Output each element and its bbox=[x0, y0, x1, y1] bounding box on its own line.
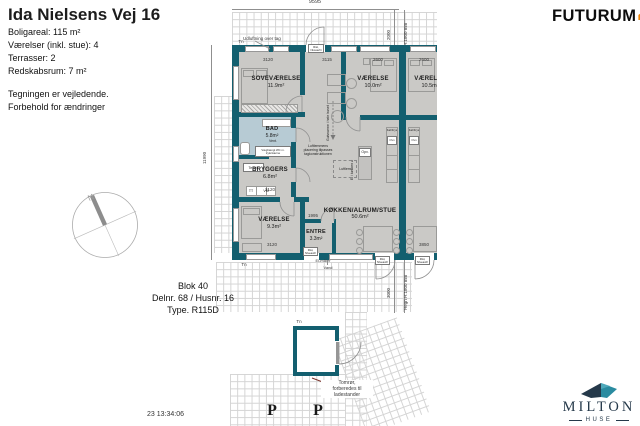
block-line2: Delnr. 68 / Husnr. 16 bbox=[133, 292, 253, 304]
spec-terrasser: Terrasser: 2 bbox=[8, 52, 56, 65]
room-label-entre: ENTRE 3.3m² bbox=[306, 229, 326, 242]
shed bbox=[293, 326, 339, 376]
dim-sove-width: 3120 bbox=[255, 57, 281, 62]
milton-rule-left bbox=[569, 420, 582, 421]
block-line1: Blok 40 bbox=[133, 280, 253, 292]
timestamp: 23 13:34:06 bbox=[147, 411, 184, 418]
spec-redskabsrum: Redskabsrum: 7 m² bbox=[8, 65, 87, 78]
dim-neighbor-stue-width: 3850 bbox=[412, 242, 436, 247]
neighbor-unit-clip: VÆRELSE 10.5m² bbox=[406, 52, 437, 253]
el-meter-label: El-måler bbox=[310, 258, 336, 263]
dim-entre-width: 1995 bbox=[303, 213, 323, 218]
milton-wordmark: MILTON bbox=[558, 399, 640, 416]
parking-spot-letter: P bbox=[312, 402, 324, 420]
gulvvarme-note: Gulvvarme i hele huset bbox=[326, 99, 330, 141]
block-line3: Type. R115D bbox=[133, 304, 253, 316]
dim-v2-width: 2600 bbox=[411, 57, 437, 62]
shed-door-leaf bbox=[336, 342, 339, 364]
disclaimer-line2: Forbehold for ændringer bbox=[8, 101, 105, 114]
room-label-bryggers: BRYGGERS 6.8m² bbox=[252, 167, 288, 180]
compass-rose bbox=[68, 188, 142, 262]
room-label-sovevaerelse: SOVEVÆRELSE 11.9m² bbox=[252, 76, 301, 89]
dim-stue-width: 3115 bbox=[314, 57, 340, 62]
milton-subtitle: HUSE bbox=[586, 417, 613, 423]
milton-rule-right bbox=[616, 420, 629, 421]
room-label-stue: KØKKEN/ALRUM/STUE 50.6m² bbox=[324, 207, 397, 220]
room-label-vaerelse-1: VÆRELSE 10.0m² bbox=[357, 76, 388, 89]
loft-hatch-box: Luftlem bbox=[333, 160, 357, 178]
charging-note: Tomrør, forberedes til ladestander bbox=[321, 380, 373, 398]
room-label-bad: BAD 5.8m² bbox=[266, 126, 279, 139]
luftlem-note: Luftlemmens placering tilpasses tagkonst… bbox=[300, 144, 336, 156]
room-label-vaerelse-2: VÆRELSE 10.5m² bbox=[414, 76, 437, 89]
tn-marker: Tn bbox=[294, 319, 304, 324]
milton-roof-icon bbox=[579, 381, 619, 399]
parking-spot-letter: P bbox=[266, 402, 278, 420]
dim-bryggers-width: 3120 bbox=[258, 187, 282, 192]
disclaimer-line1: Tegningen er vejledende. bbox=[8, 88, 109, 101]
dim-v1-width: 2600 bbox=[365, 57, 391, 62]
floor-plan-sheet: Ida Nielsens Vej 16 Boligareal: 115 m² V… bbox=[0, 0, 640, 426]
water-label: Vand bbox=[318, 265, 338, 270]
milton-subtitle-row: HUSE bbox=[558, 417, 640, 423]
udluftning-note: Udluftning over tag bbox=[243, 36, 287, 41]
loft-hatch-label: Luftlem bbox=[334, 167, 356, 171]
water-tick bbox=[327, 260, 328, 265]
rist-box: Rist, Niveaufri bbox=[308, 44, 324, 53]
spec-vaerelser: Værelser (inkl. stue): 4 bbox=[8, 39, 99, 52]
room-label-vaerelse-3: VÆRELSE 9.3m² bbox=[258, 217, 289, 230]
rist-box: Rist, Niveaufri bbox=[303, 247, 318, 256]
rist-box: Rist, Niveaufri bbox=[375, 256, 390, 265]
tn-marker: Tn bbox=[236, 39, 246, 44]
block-info: Blok 40 Delnr. 68 / Husnr. 16 Type. R115… bbox=[133, 280, 253, 316]
page-title: Ida Nielsens Vej 16 bbox=[8, 5, 160, 25]
dim-v3-width: 3120 bbox=[260, 242, 284, 247]
spec-boligareal: Boligareal: 115 m² bbox=[8, 26, 80, 39]
milton-logo: MILTON HUSE bbox=[558, 381, 640, 423]
tn-marker: Tn bbox=[239, 262, 249, 267]
futurum-wordmark: FUTURUM bbox=[552, 7, 636, 26]
rist-box: Rist, Niveaufri bbox=[415, 256, 430, 265]
futurum-logo: FUTURUM bbox=[552, 7, 640, 26]
